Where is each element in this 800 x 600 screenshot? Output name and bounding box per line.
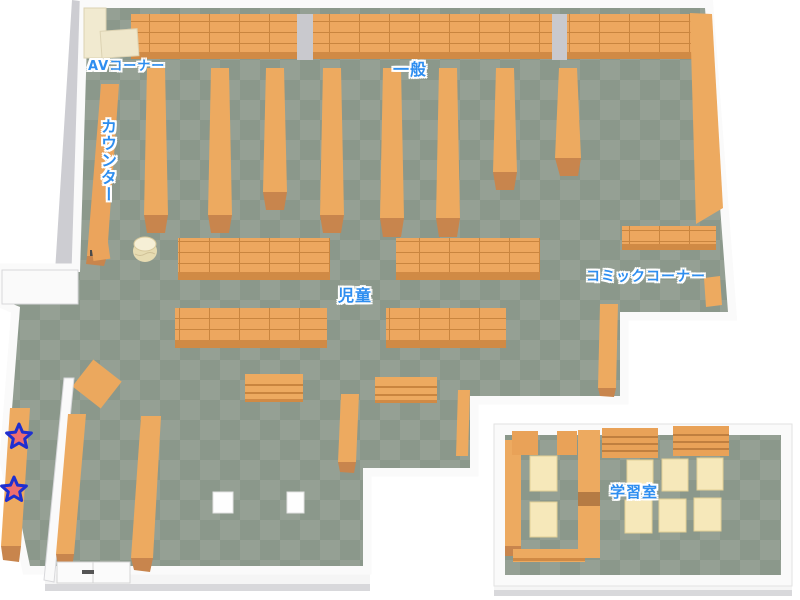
bookshelf	[313, 14, 552, 54]
wall-pillar	[297, 14, 313, 60]
entrance	[57, 562, 130, 583]
bookshelf	[512, 431, 538, 455]
study-table	[662, 459, 688, 491]
area-label-comic-corner: コミックコーナー	[586, 266, 706, 286]
study-table	[697, 458, 723, 490]
area-label-av-corner: AVコーナー	[88, 55, 165, 74]
bookshelf	[144, 68, 168, 215]
bookshelf	[456, 390, 470, 456]
bookshelf	[557, 431, 577, 455]
wall-shelf-unit	[602, 428, 658, 458]
study-table	[530, 502, 557, 537]
bookshelf	[338, 394, 359, 462]
bookshelf	[175, 308, 327, 344]
area-label-study-room: 学習室	[610, 481, 658, 502]
study-table	[625, 500, 652, 533]
area-label-children: 児童	[338, 282, 372, 306]
area-label-counter: カウンター	[95, 118, 119, 203]
bookshelf	[396, 238, 540, 276]
wall-shelf-unit	[673, 426, 729, 456]
bookshelf	[505, 440, 521, 550]
wall-pillar	[552, 14, 567, 60]
bookshelf	[91, 239, 111, 261]
white-box	[287, 492, 304, 513]
basket	[133, 237, 157, 262]
bookshelf	[131, 14, 297, 54]
bookshelf	[320, 68, 344, 215]
study-table	[659, 499, 686, 532]
bookshelf	[178, 238, 330, 276]
study-table	[530, 456, 557, 491]
floor-map-canvas	[0, 0, 800, 600]
library-floor-map: AVコーナー 一般 カウンター 児童 コミックコーナー 学習室	[0, 0, 800, 600]
bookshelf	[555, 68, 581, 158]
bookshelf	[208, 68, 232, 215]
bookshelf	[263, 68, 287, 192]
bookshelf	[386, 308, 506, 344]
top-wall-bookshelves	[131, 14, 703, 60]
bookshelf	[567, 14, 703, 54]
bookshelf	[704, 276, 722, 307]
study-room	[494, 424, 792, 586]
study-table	[694, 498, 721, 531]
bookshelf	[493, 68, 517, 172]
bookshelf	[380, 68, 404, 218]
bench	[245, 374, 303, 402]
bench	[375, 377, 437, 403]
bookshelf	[436, 68, 460, 218]
white-box	[213, 492, 233, 513]
wall-block	[2, 270, 78, 304]
bookshelf	[598, 304, 618, 388]
area-label-general: 一般	[393, 56, 427, 80]
